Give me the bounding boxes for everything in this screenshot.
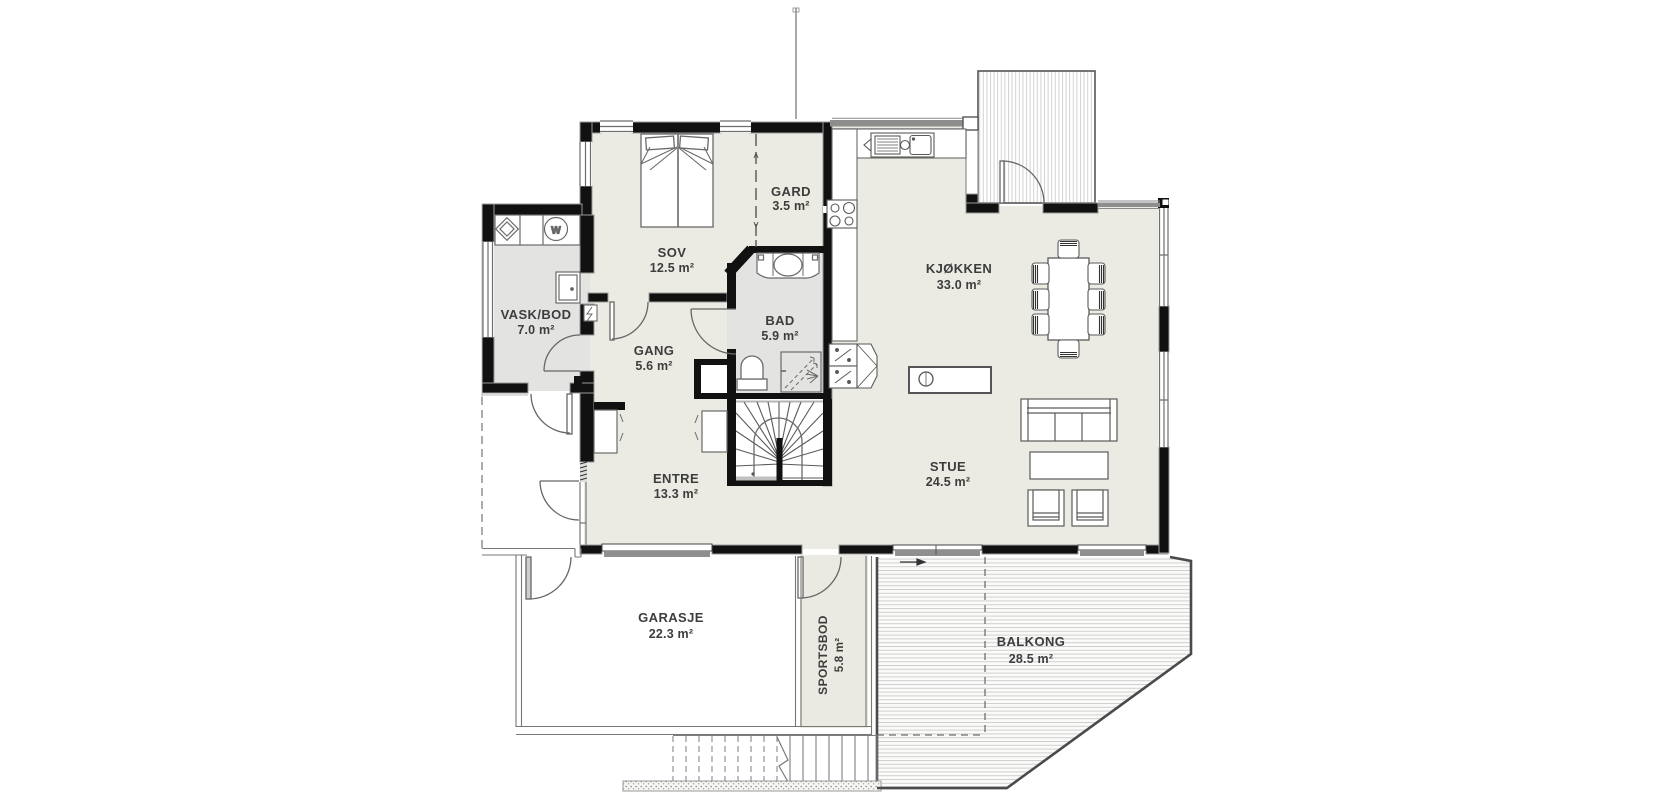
svg-text:STUE: STUE (930, 459, 966, 474)
svg-text:13.3 m²: 13.3 m² (654, 487, 698, 501)
svg-text:24.5 m²: 24.5 m² (926, 475, 970, 489)
svg-text:SPORTSBOD: SPORTSBOD (816, 615, 830, 695)
svg-text:12.5 m²: 12.5 m² (650, 261, 694, 275)
svg-text:5.6 m²: 5.6 m² (635, 359, 672, 373)
svg-text:GANG: GANG (634, 343, 675, 358)
svg-text:3.5 m²: 3.5 m² (772, 199, 809, 213)
svg-text:W: W (551, 226, 561, 237)
svg-text:7.0 m²: 7.0 m² (517, 323, 554, 337)
svg-text:BAD: BAD (765, 313, 794, 328)
svg-text:22.3 m²: 22.3 m² (649, 627, 693, 641)
svg-text:KJØKKEN: KJØKKEN (926, 261, 992, 276)
svg-text:5.8 m²: 5.8 m² (834, 638, 846, 672)
svg-text:5.9 m²: 5.9 m² (761, 329, 798, 343)
svg-text:GARD: GARD (771, 184, 811, 199)
svg-text:33.0 m²: 33.0 m² (937, 278, 981, 292)
svg-text:GARASJE: GARASJE (638, 610, 704, 625)
svg-text:28.5 m²: 28.5 m² (1009, 652, 1053, 666)
svg-text:VASK/BOD: VASK/BOD (501, 307, 572, 322)
svg-text:BALKONG: BALKONG (997, 634, 1066, 649)
svg-text:ENTRE: ENTRE (653, 471, 699, 486)
svg-text:SOV: SOV (658, 245, 687, 260)
